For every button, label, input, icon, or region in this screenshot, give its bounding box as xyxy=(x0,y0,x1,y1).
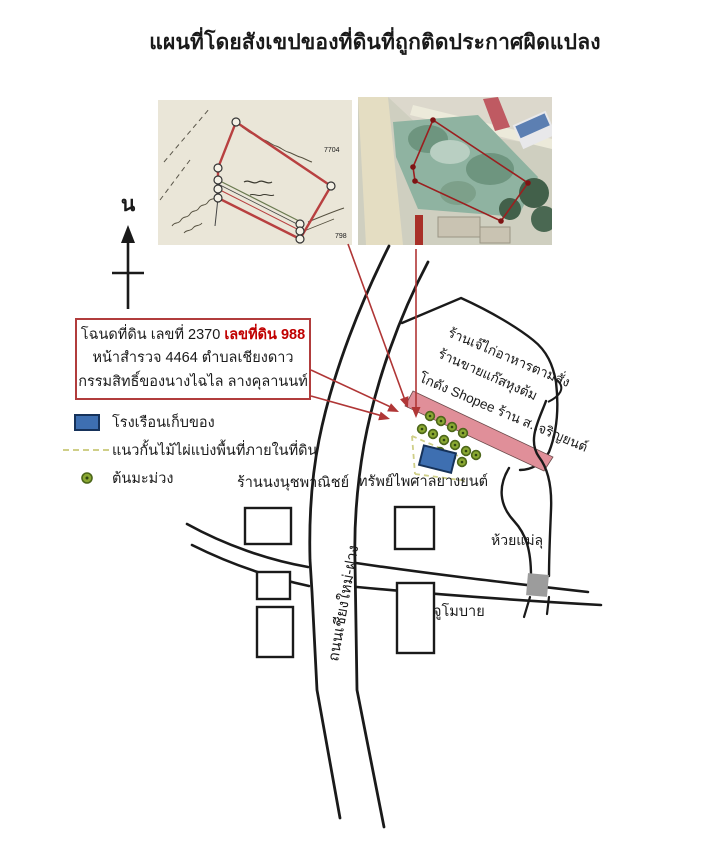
stream-west-line xyxy=(502,468,531,576)
east-road-upper xyxy=(356,563,588,592)
map-page: แผนที่โดยสังเขปของที่ดินที่ถูกติดประกาศผ… xyxy=(0,0,711,846)
stream-below-east xyxy=(547,597,549,614)
red-leader-lines xyxy=(311,244,416,417)
highway-west-line xyxy=(310,246,389,818)
label-tire-shop: ทรัพย์ไพศาลยางยนต์ xyxy=(358,470,488,493)
label-nongnuch-shop: ร้านนงนุชพาณิชย์ xyxy=(237,471,349,494)
storage-building-blue xyxy=(419,445,456,472)
building-small xyxy=(257,572,290,599)
building-nongnuch xyxy=(245,508,291,544)
label-stream: ห้วยแม่ลุ xyxy=(491,530,543,552)
sketch-map: ร้านเจ๊ไก่อาหารตามสั่ง ร้านขายแก๊สหุงต้ม… xyxy=(0,0,711,846)
building-garage xyxy=(397,583,434,653)
building-tire-shop xyxy=(395,507,434,549)
label-garage: จูโมบาย xyxy=(433,600,485,623)
culvert-gray-box xyxy=(526,573,549,597)
building-lower-left xyxy=(257,607,293,657)
